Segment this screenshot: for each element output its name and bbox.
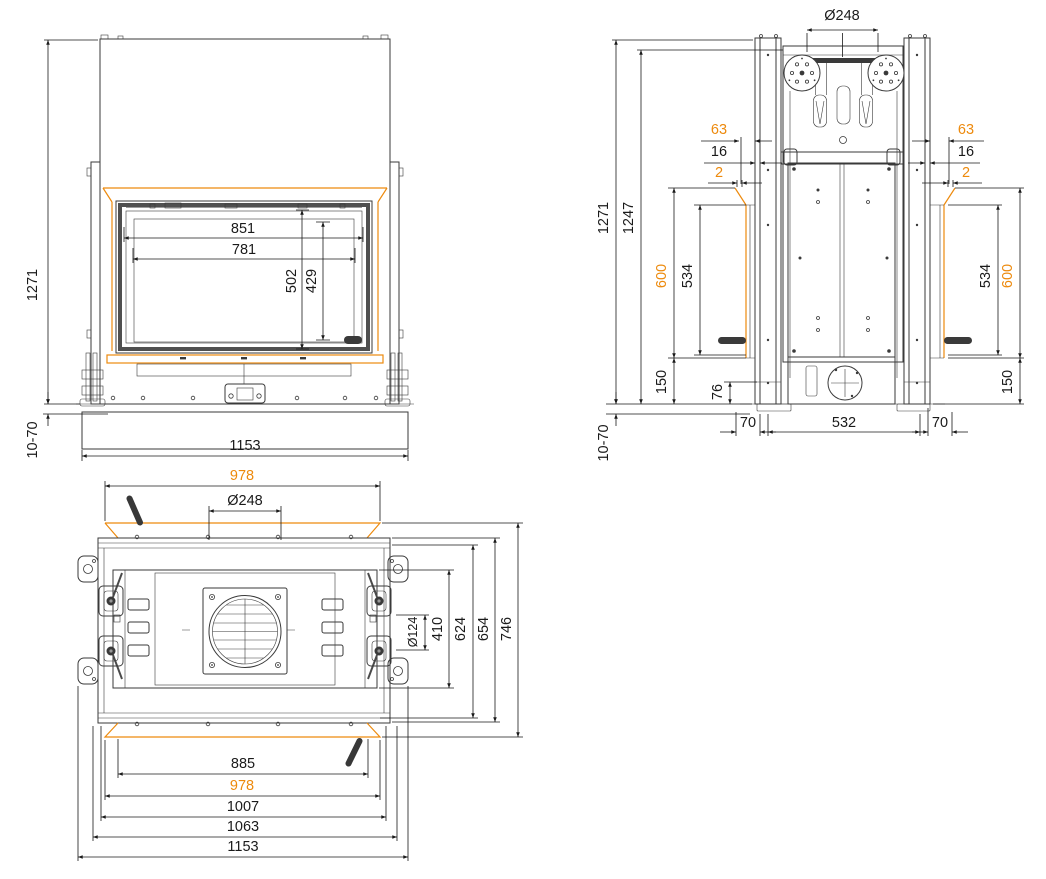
- dim-rear-gap-left: 2: [715, 165, 723, 181]
- cable-winch-bottom-right: [367, 636, 391, 679]
- dim-rear-side-glass-height-right: 600: [1000, 264, 1016, 288]
- lift-crossbar: [806, 58, 880, 63]
- counterweight-spring-right: [860, 95, 873, 127]
- top-view: 978 Ø248 Ø124 410 624 654 746 885 978 10…: [78, 468, 523, 861]
- cable-winch-top-left: [99, 573, 123, 616]
- door-handle: [344, 336, 362, 344]
- front-lower-panel: [111, 364, 378, 403]
- dim-top-flue-diameter: Ø248: [227, 493, 262, 509]
- dim-front-glass-width: 781: [232, 242, 256, 258]
- side-glass-right: [930, 188, 972, 358]
- dim-top-fan-diameter: Ø124: [406, 617, 420, 648]
- dim-front-glass-height: 429: [304, 269, 320, 293]
- dim-rear-frame-offset-right: 16: [958, 144, 974, 160]
- vent-slots-left: [128, 599, 149, 656]
- dim-top-width-1007: 1007: [227, 799, 259, 815]
- dim-front-frame-height: 502: [284, 269, 300, 293]
- adjustable-foot-left: [80, 353, 105, 406]
- dim-rear-frame-offset-left: 16: [711, 144, 727, 160]
- side-glass-left: [718, 188, 755, 358]
- dim-front-overall-height: 1271: [25, 269, 41, 301]
- side-handle-right: [944, 337, 972, 344]
- dim-rear-base-offset-left: 70: [740, 415, 756, 431]
- handle-bar-front: [130, 499, 141, 523]
- dim-rear-overall-height: 1271: [596, 202, 612, 234]
- dim-rear-glass-offset-right: 63: [958, 122, 974, 138]
- dim-front-overall-width: 1153: [229, 438, 260, 454]
- dim-rear-side-panel-height-left: 534: [680, 264, 696, 288]
- dim-rear-body-height: 1247: [621, 202, 637, 234]
- vent-slots-right: [322, 599, 343, 656]
- rear-view: Ø248 63 63 16 16 2 2 1271 1247 600 534 5…: [596, 8, 1024, 462]
- dim-top-overall-depth: 746: [499, 617, 515, 641]
- top-body: [98, 535, 390, 726]
- corner-bracket-top-right: [388, 556, 408, 582]
- dim-rear-base-step: 76: [710, 384, 726, 400]
- pulley-icon-left: [784, 55, 820, 91]
- pulley-icon-right: [868, 55, 904, 91]
- corner-bracket-top-left: [78, 556, 98, 582]
- dim-top-width-885: 885: [231, 756, 255, 772]
- side-handle-left: [718, 337, 746, 344]
- dim-top-overall-width: 1153: [227, 839, 258, 855]
- dim-rear-flue-diameter: Ø248: [824, 8, 859, 24]
- dim-rear-base-height-right: 150: [1000, 370, 1016, 394]
- rear-base-housing: [740, 357, 945, 411]
- rear-panel: [788, 163, 895, 357]
- cable-winch-bottom-left: [99, 636, 123, 679]
- corner-bracket-bottom-left: [78, 658, 98, 684]
- adjustable-foot-right: [385, 353, 410, 406]
- dim-top-glass-width-front: 978: [230, 468, 254, 484]
- cable-winch-top-right: [367, 573, 391, 616]
- dim-top-inner-depth: 410: [430, 617, 446, 641]
- technical-drawing: 851 781 502 429 1271 10-70 1153: [0, 0, 1046, 879]
- front-glass: [134, 219, 354, 342]
- front-view: 851 781 502 429 1271 10-70 1153: [25, 35, 414, 461]
- counterweight-spring-left: [814, 95, 827, 127]
- dim-rear-floor-adjust: 10-70: [596, 424, 612, 461]
- dim-rear-gap-right: 2: [962, 165, 970, 181]
- drawing-canvas: 851 781 502 429 1271 10-70 1153: [0, 0, 1046, 879]
- top-dimension-lines: [78, 486, 518, 857]
- rear-dimension-lines: [616, 30, 1020, 432]
- dim-top-outer-depth: 654: [476, 617, 492, 641]
- front-glass-surround: [103, 188, 387, 363]
- dim-rear-base-height-left: 150: [654, 370, 670, 394]
- dim-rear-base-width: 532: [832, 415, 856, 431]
- dim-rear-base-offset-right: 70: [932, 415, 948, 431]
- rear-body: [783, 46, 903, 378]
- dim-rear-side-panel-height-right: 534: [978, 264, 994, 288]
- dim-top-mid-depth: 624: [453, 617, 469, 641]
- dim-top-width-1063: 1063: [227, 819, 259, 835]
- dim-front-floor-adjust: 10-70: [25, 421, 41, 458]
- dim-rear-side-glass-height-left: 600: [654, 264, 670, 288]
- dim-front-frame-width: 851: [231, 221, 255, 237]
- dim-top-glass-width-rear: 978: [230, 778, 254, 794]
- guide-column-right: [904, 38, 930, 404]
- guide-column-left: [755, 38, 781, 404]
- handle-bar-rear: [349, 741, 360, 764]
- dim-rear-glass-offset-left: 63: [711, 122, 727, 138]
- flue-outlet: [203, 588, 287, 674]
